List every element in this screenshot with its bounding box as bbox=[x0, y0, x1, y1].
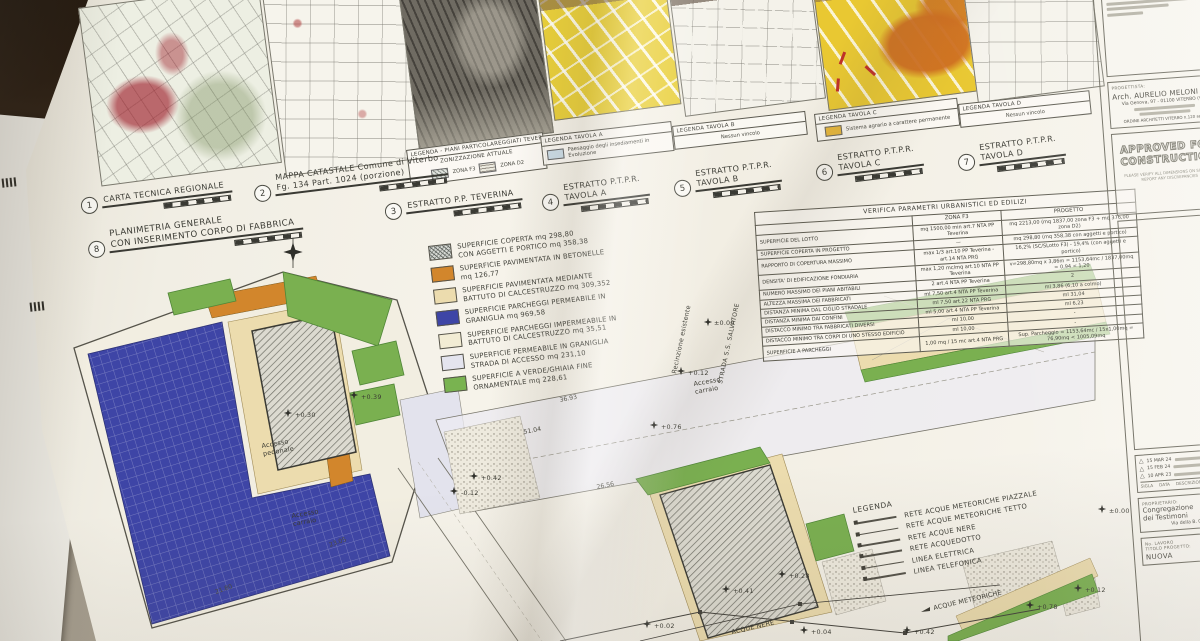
revision-triangle-icon: △ bbox=[1139, 459, 1144, 465]
owner-address: Via della B. bbox=[1171, 520, 1197, 527]
zone-d2-label: ZONA D2 bbox=[500, 160, 525, 169]
svg-text:±0.00: ±0.00 bbox=[1109, 507, 1130, 515]
red-mark bbox=[865, 65, 877, 76]
svg-text:+0.28: +0.28 bbox=[789, 572, 810, 580]
building-two-footprint bbox=[660, 465, 818, 638]
swatch-betonelle bbox=[431, 265, 456, 283]
map-thumbnail-catastale bbox=[262, 0, 425, 176]
manhole-node bbox=[698, 610, 702, 614]
job-block: No. LAVORO TITOLO PROGETTO: NUOVA bbox=[1141, 530, 1200, 566]
tavola-d-item: Nessun vincolo bbox=[1006, 109, 1046, 119]
svg-text:+0.12: +0.12 bbox=[1085, 586, 1106, 594]
line-symbol bbox=[864, 572, 906, 581]
manhole-node bbox=[798, 602, 802, 606]
line-symbol bbox=[855, 516, 897, 525]
line-symbol bbox=[860, 550, 902, 559]
swatch-parcheggi-permeabile bbox=[436, 309, 461, 327]
rev-col-sigla: SIGLA bbox=[1141, 483, 1154, 489]
swatch-calcestruzzo bbox=[433, 287, 458, 305]
panel-number-1: 1 bbox=[80, 196, 99, 215]
map-thumbnail-ptpr-tavola-c bbox=[812, 0, 977, 111]
panel-number-6: 6 bbox=[815, 163, 834, 182]
revision-triangle-icon: △ bbox=[1140, 473, 1145, 479]
panel-number-8: 8 bbox=[87, 240, 106, 259]
swatch-coperta bbox=[428, 243, 453, 261]
owner-block: PROPRIETARIO: Congregazionedei Testimoni… bbox=[1138, 490, 1200, 533]
svg-text:+0.39: +0.39 bbox=[361, 393, 382, 401]
red-mark bbox=[839, 52, 846, 65]
line-symbol bbox=[862, 561, 904, 570]
empty-block bbox=[1117, 213, 1200, 451]
swatch-parcheggi-impermeabile bbox=[438, 331, 463, 349]
svg-text:+0.41: +0.41 bbox=[733, 587, 754, 595]
manhole-node bbox=[790, 620, 794, 624]
flow-arrow bbox=[921, 607, 930, 612]
photographed-site-plan-sheet: LEGENDA - PIANI PARTICOLAREGGIATI TEVERI… bbox=[0, 0, 1200, 641]
svg-text:+0.30: +0.30 bbox=[295, 411, 316, 419]
revisions-block: △15 MAR 24 △15 FEB 24 △10 APR 23 SIGLADA… bbox=[1134, 447, 1200, 493]
panel-number-4: 4 bbox=[541, 193, 560, 212]
approval-stamp: APPROVED FORCONSTRUCTION PLEASE VERIFY A… bbox=[1111, 126, 1200, 216]
svg-text:+0.76: +0.76 bbox=[661, 423, 682, 431]
map-thumbnail-ptpr-tavola-a bbox=[537, 0, 681, 121]
tavola-b-item: Nessun vincolo bbox=[721, 130, 761, 140]
red-mark bbox=[836, 78, 840, 91]
tavola-a-swatch bbox=[547, 148, 565, 160]
map-thumbnail-carta-tecnica bbox=[78, 0, 282, 186]
fold-tick-marks bbox=[30, 301, 45, 311]
svg-text:+0.04: +0.04 bbox=[811, 628, 832, 636]
svg-text:+0.78: +0.78 bbox=[1037, 603, 1058, 611]
panel-number-7: 7 bbox=[957, 153, 976, 172]
zone-f3-label: ZONA F3 bbox=[452, 166, 476, 175]
svg-text:+0.02: +0.02 bbox=[654, 622, 675, 630]
zone-d2-swatch bbox=[479, 161, 497, 173]
parameters-table: VERIFICA PARAMETRI URBANISTICI ED EDILIZ… bbox=[754, 189, 1144, 362]
tavola-c-swatch bbox=[825, 125, 843, 137]
north-arrow-icon bbox=[283, 236, 302, 268]
surface-legend: SUPERFICIE COPERTA mq 298,80CON AGGETTI … bbox=[428, 217, 704, 401]
panel-number-5: 5 bbox=[673, 179, 692, 198]
panel-number-3: 3 bbox=[384, 202, 403, 221]
panel-number-2: 2 bbox=[253, 184, 272, 203]
rev-col-data: DATA bbox=[1159, 482, 1170, 488]
svg-text:+0.42: +0.42 bbox=[481, 474, 502, 482]
map-thumbnail-pp-teverina bbox=[398, 0, 554, 151]
fold-tick-marks bbox=[2, 177, 17, 187]
map-thumbnail-ptpr-tavola-b bbox=[668, 0, 826, 117]
designer-block: PROGETTISTA: Arch. AURELIO MELONI Via Ge… bbox=[1107, 74, 1200, 129]
swatch-graniglia bbox=[441, 353, 466, 371]
swatch-verde bbox=[443, 375, 468, 393]
revision-triangle-icon: △ bbox=[1139, 466, 1144, 472]
stamp-note: PLEASE VERIFY ALL DIMENSIONS ON SITE AND… bbox=[1118, 166, 1200, 184]
rev-col-descrizione: DESCRIZIONE bbox=[1176, 479, 1200, 486]
line-symbol bbox=[857, 527, 899, 536]
line-symbol bbox=[859, 539, 901, 548]
project-info-block bbox=[1100, 0, 1200, 77]
map-thumbnail-ptpr-tavola-d bbox=[962, 0, 1105, 103]
svg-text:+0.42: +0.42 bbox=[914, 628, 935, 636]
svg-text:-0.12: -0.12 bbox=[461, 489, 479, 497]
